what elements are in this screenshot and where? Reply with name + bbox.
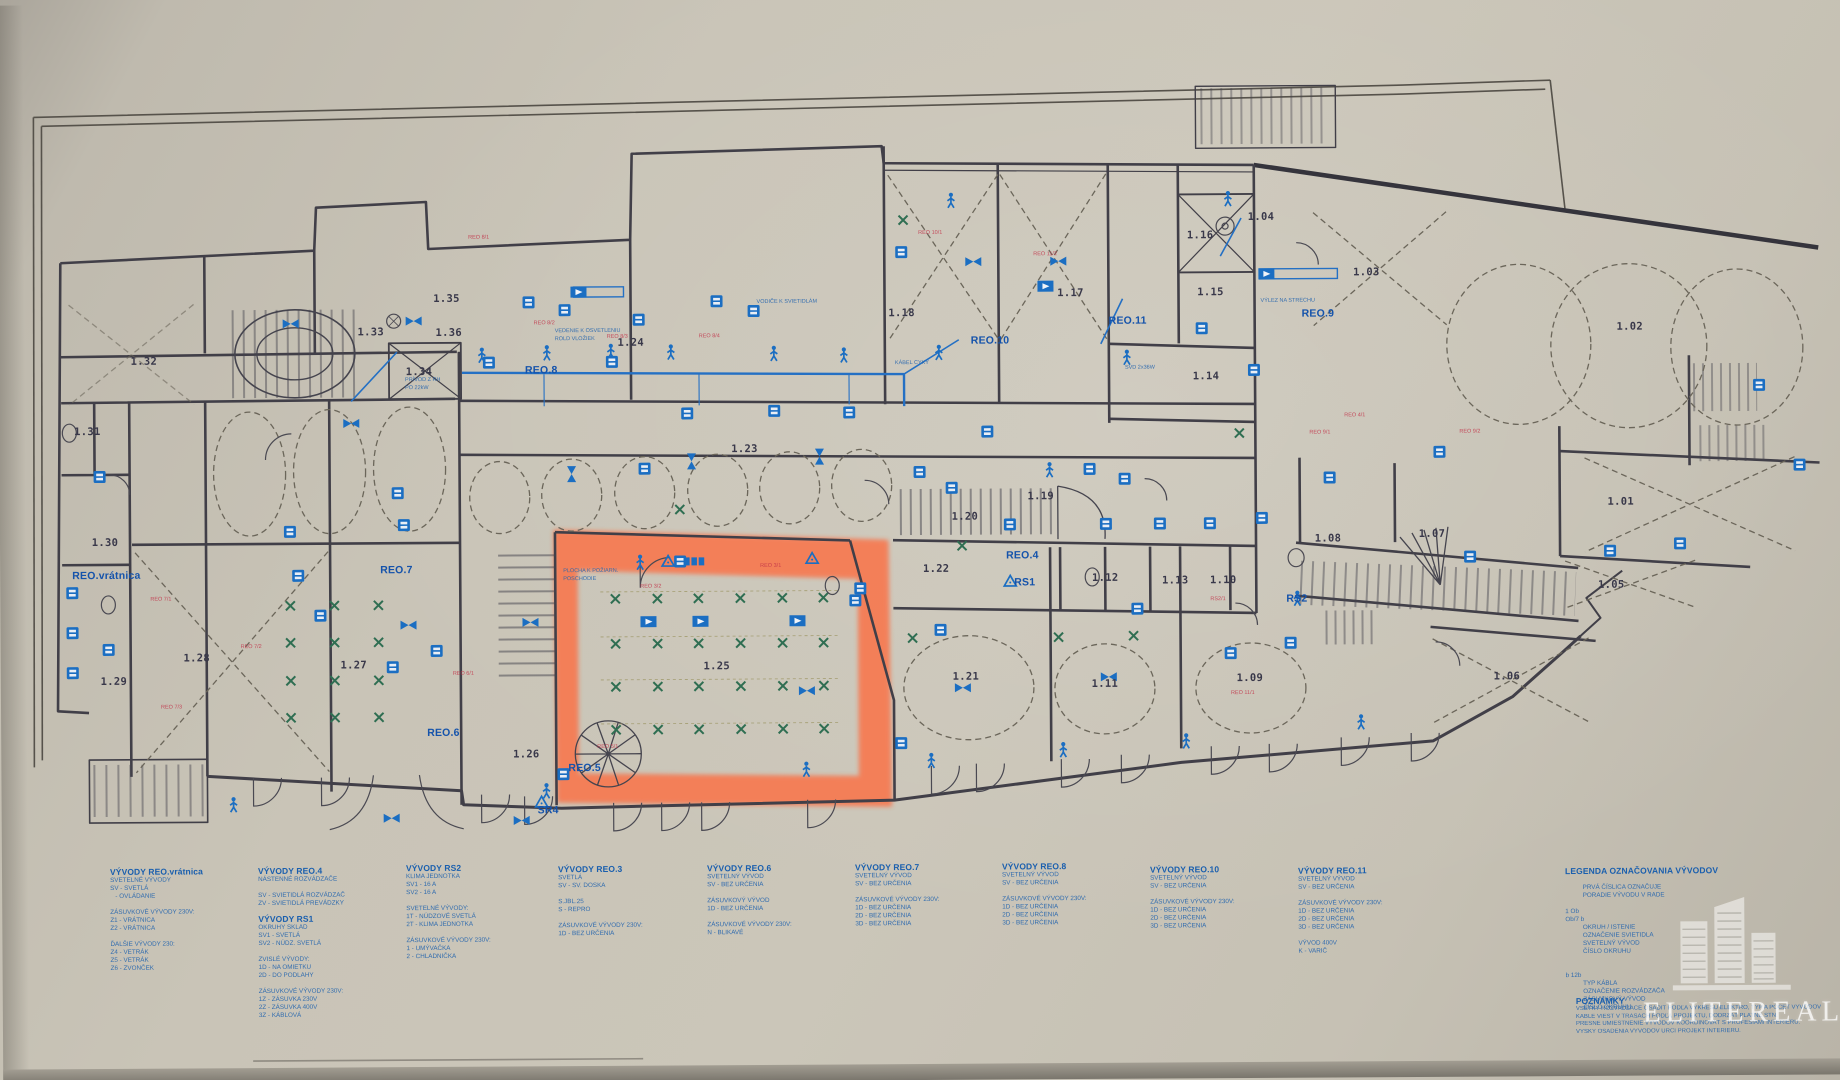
ceiling-light-x-icon xyxy=(737,725,746,734)
panel-box-icon xyxy=(1464,551,1476,563)
ceiling-light-x-icon xyxy=(819,593,828,602)
floor-plan-drawing xyxy=(0,0,1840,1080)
panel-box-icon xyxy=(1794,459,1806,471)
ceiling-light-x-icon xyxy=(611,639,620,648)
drawing-sheet: 1.011.021.031.041.051.061.071.081.091.10… xyxy=(0,0,1840,1080)
panel-box-icon xyxy=(1285,637,1297,649)
ceiling-light-x-icon xyxy=(654,725,663,734)
warning-triangle-icon xyxy=(1004,575,1016,586)
ceiling-light-x-icon xyxy=(374,638,383,647)
panel-box-icon xyxy=(606,356,618,368)
ceiling-light-x-icon xyxy=(694,682,703,691)
panel-box-icon xyxy=(633,314,645,326)
exit-person-icon xyxy=(928,753,935,768)
panel-box-icon xyxy=(66,587,78,599)
ceiling-light-x-icon xyxy=(778,593,787,602)
panel-box-icon xyxy=(914,466,926,478)
ceiling-light-x-icon xyxy=(653,594,662,603)
warning-triangle-icon xyxy=(536,796,548,807)
ceiling-light-x-icon xyxy=(286,638,295,647)
panel-box-icon xyxy=(711,295,723,307)
ceiling-light-x-icon xyxy=(694,639,703,648)
ceiling-light-x-icon xyxy=(736,594,745,603)
speaker-icon xyxy=(789,615,805,626)
exit-person-icon xyxy=(770,346,777,361)
panel-box-icon xyxy=(523,296,535,308)
exit-person-icon xyxy=(1294,591,1301,606)
ceiling-light-x-icon xyxy=(820,724,829,733)
panel-box-icon xyxy=(1256,512,1268,524)
ceiling-light-x-icon xyxy=(779,724,788,733)
ceiling-light-x-icon xyxy=(819,681,828,690)
walls xyxy=(54,83,1821,824)
panel-box-icon xyxy=(1131,603,1143,615)
valve-icon xyxy=(283,319,299,328)
panel-box-icon xyxy=(103,644,115,656)
ceiling-light-x-icon xyxy=(653,682,662,691)
valve-icon xyxy=(522,618,538,627)
panel-box-icon xyxy=(935,624,947,636)
ceiling-light-x-icon xyxy=(778,638,787,647)
exit-person-icon xyxy=(1046,462,1053,477)
panel-box-icon xyxy=(895,737,907,749)
ceiling-light-x-icon xyxy=(778,681,787,690)
speaker-icon xyxy=(1037,281,1053,292)
stairs xyxy=(89,113,1767,791)
exit-person-icon xyxy=(840,347,847,362)
panel-box-icon xyxy=(1204,517,1216,529)
ceiling-light-x-icon xyxy=(374,601,383,610)
socket-group-icon xyxy=(684,557,704,565)
exit-person-icon xyxy=(1183,733,1190,748)
panel-box-icon xyxy=(94,471,106,483)
ceiling-light-x-icon xyxy=(1129,631,1138,640)
ceiling-light-x-icon xyxy=(908,634,917,643)
panel-box-icon xyxy=(1604,545,1616,557)
exit-person-icon xyxy=(543,345,550,360)
valve-icon xyxy=(799,686,815,695)
watermark-text: ELITEREAL xyxy=(1643,995,1828,1029)
panel-box-icon xyxy=(431,645,443,657)
panel-box-icon xyxy=(946,482,958,494)
ceiling-light-x-icon xyxy=(736,682,745,691)
valve-icon xyxy=(1050,257,1066,266)
ceiling-light-x-icon xyxy=(611,594,620,603)
valve-icon xyxy=(1101,672,1117,681)
panel-box-icon xyxy=(1100,518,1112,530)
valve-icon xyxy=(955,683,971,692)
ceiling-light-x-icon xyxy=(675,505,684,514)
valve-icon xyxy=(965,257,981,266)
panel-box-icon xyxy=(1196,322,1208,334)
panel-box-icon xyxy=(292,570,304,582)
ceiling-light-x-icon xyxy=(286,676,295,685)
speaker-icon xyxy=(1258,268,1274,279)
panel-box-icon xyxy=(1674,537,1686,549)
ceiling-light-x-icon xyxy=(374,676,383,685)
panel-box-icon xyxy=(849,594,861,606)
panel-box-icon xyxy=(681,407,693,419)
ceiling-light-x-icon xyxy=(375,713,384,722)
panel-box-icon xyxy=(1225,647,1237,659)
panel-box-icon xyxy=(1753,379,1765,391)
watermark-logo-buildings-icon xyxy=(1672,893,1798,996)
exit-person-icon xyxy=(803,762,810,777)
valve-icon xyxy=(400,621,416,630)
ceiling-light-x-icon xyxy=(819,638,828,647)
ceiling-light-x-icon xyxy=(611,682,620,691)
panel-box-icon xyxy=(67,667,79,679)
ceiling-light-x-icon xyxy=(1054,633,1063,642)
ceiling-light-x-icon xyxy=(1235,429,1244,438)
panel-box-icon xyxy=(483,357,495,369)
speaker-icon xyxy=(692,616,708,627)
panel-box-icon xyxy=(392,487,404,499)
panel-box-icon xyxy=(398,519,410,531)
valve-icon xyxy=(343,419,359,428)
exit-person-icon xyxy=(1123,350,1130,365)
panel-box-icon xyxy=(1084,463,1096,475)
panel-box-icon xyxy=(981,426,993,438)
valve-icon xyxy=(567,466,576,482)
ceiling-light-x-icon xyxy=(899,216,908,225)
panel-box-icon xyxy=(1324,471,1336,483)
panel-box-icon xyxy=(1154,517,1166,529)
ceiling-light-x-icon xyxy=(736,639,745,648)
floorplan-photo: 1.011.021.031.041.051.061.071.081.091.10… xyxy=(0,0,1840,1080)
panel-box-icon xyxy=(387,661,399,673)
panel-box-icon xyxy=(284,526,296,538)
exit-person-icon xyxy=(935,345,942,360)
panel-box-icon xyxy=(639,463,651,475)
panel-box-icon xyxy=(314,610,326,622)
exit-person-icon xyxy=(1060,742,1067,757)
panel-box-icon xyxy=(895,246,907,258)
panel-box-icon xyxy=(748,305,760,317)
ceiling-light-x-icon xyxy=(612,725,621,734)
panel-box-icon xyxy=(1119,473,1131,485)
ceiling-light-x-icon xyxy=(958,541,967,550)
panel-box-icon xyxy=(854,582,866,594)
speaker-icon xyxy=(570,287,586,298)
panel-box-icon xyxy=(1248,364,1260,376)
exit-person-icon xyxy=(543,783,550,798)
panel-box-icon xyxy=(843,406,855,418)
valve-icon xyxy=(406,317,422,326)
ceiling-light-x-icon xyxy=(286,601,295,610)
speaker-icon xyxy=(640,616,656,627)
valve-icon xyxy=(384,814,400,823)
exit-person-icon xyxy=(947,193,954,208)
panel-box-icon xyxy=(1433,446,1445,458)
panel-box-icon xyxy=(559,304,571,316)
exit-person-icon xyxy=(230,797,237,812)
valve-icon xyxy=(514,816,530,825)
ceiling-light-x-icon xyxy=(653,639,662,648)
panel-box-icon xyxy=(1004,518,1016,530)
panel-box-icon xyxy=(67,627,79,639)
exit-person-icon xyxy=(667,344,674,359)
ceiling-light-x-icon xyxy=(694,594,703,603)
ceiling-light-x-icon xyxy=(695,725,704,734)
panel-box-icon xyxy=(557,768,569,780)
ceiling-light-x-icon xyxy=(287,713,296,722)
watermark: ELITEREAL xyxy=(1642,892,1828,1029)
exit-person-icon xyxy=(1358,714,1365,729)
panel-box-icon xyxy=(768,405,780,417)
